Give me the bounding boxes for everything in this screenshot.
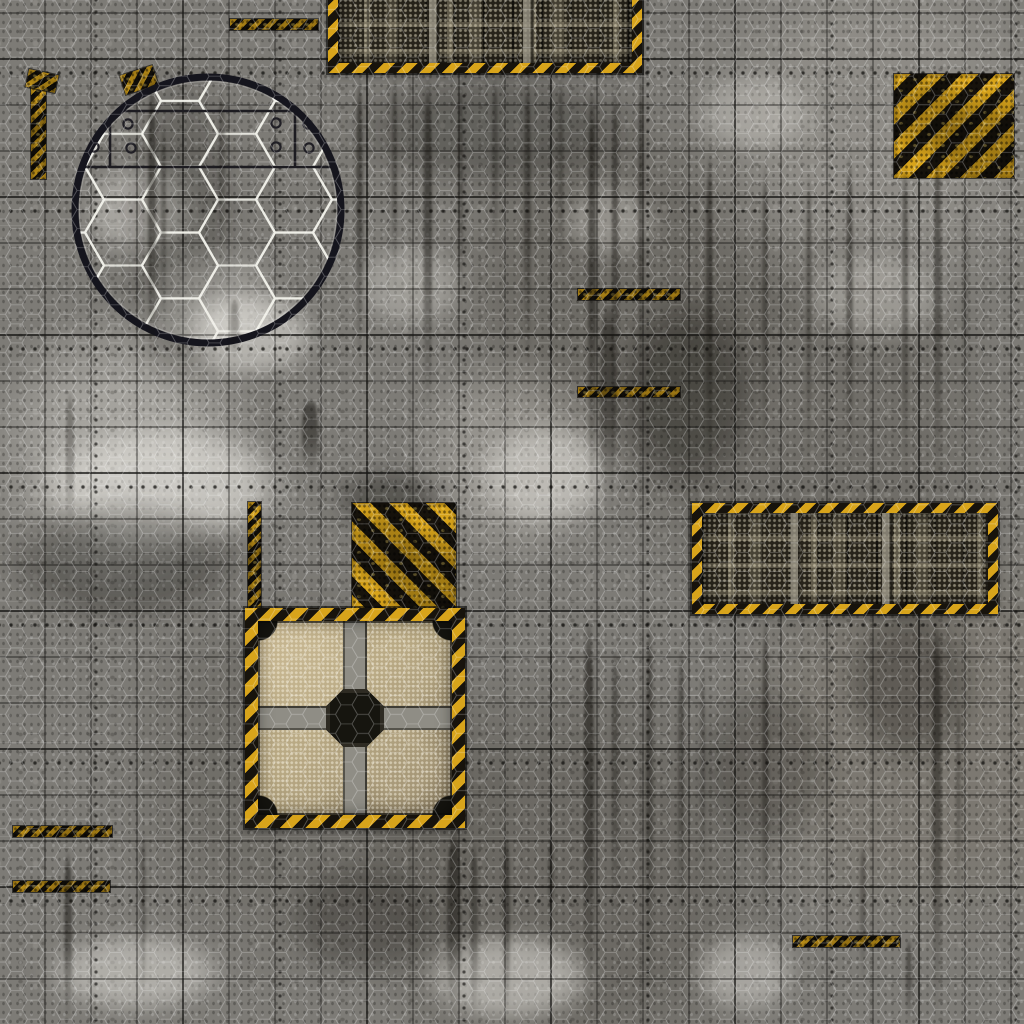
grunge-streak: [503, 832, 510, 1017]
grunge-streak: [860, 840, 866, 990]
hazard-bar: [13, 881, 110, 892]
porthole-inner-rim: [80, 82, 337, 339]
wear-patch: [420, 930, 600, 1024]
plate-screws: [89, 118, 313, 152]
grunge-streak: [612, 76, 618, 466]
hazard-bar: [120, 65, 159, 95]
hazard-bar: [13, 826, 112, 837]
hex-porthole-window: [66, 68, 350, 352]
grunge-streak: [161, 120, 166, 330]
grunge-streak: [678, 640, 684, 940]
grunge-streak: [762, 160, 768, 480]
grunge-streak: [447, 828, 461, 1018]
wear-patch: [690, 70, 820, 155]
hex-mesh-overlay: [0, 0, 1024, 1024]
grunge-streak: [902, 160, 908, 480]
grunge-streak: [934, 140, 941, 490]
grunge-streaks-group: [0, 0, 1024, 1024]
grunge-streak: [846, 150, 853, 480]
grunge-streak: [600, 300, 616, 520]
hazard-square-mid: [352, 503, 456, 613]
cargo-quilt-panel: [245, 608, 465, 828]
grunge-streak: [706, 150, 713, 480]
grunge-streak: [956, 700, 961, 910]
stain-patch: [840, 600, 980, 770]
grunge-streak: [588, 80, 596, 510]
stain-patch: [340, 70, 650, 190]
grunge-streak: [584, 614, 594, 1024]
hex-porthole: [66, 68, 350, 352]
grunge-streak: [302, 398, 318, 472]
grunge-streak: [230, 298, 239, 360]
grunge-streak: [66, 390, 74, 530]
grunge-streak: [638, 72, 644, 382]
grunge-streak: [140, 830, 146, 1000]
wear-patch: [180, 290, 320, 380]
grunge-streak: [148, 76, 156, 376]
floor-features: [0, 0, 1024, 1024]
hazard-bar: [793, 936, 900, 947]
grunge-streak: [356, 72, 363, 372]
grunge-streak: [646, 614, 653, 1004]
wear-patch: [80, 160, 200, 260]
wear-patch: [800, 250, 950, 345]
plate-seam-lines: [72, 111, 348, 167]
wear-patches-group: [0, 0, 1024, 1024]
grunge-streak: [806, 170, 812, 470]
wear-patch: [40, 930, 230, 1015]
wear-patch: [28, 420, 298, 550]
stain-patch: [612, 290, 762, 500]
grunge-streak: [424, 72, 432, 422]
grunge-streak: [548, 836, 554, 926]
stain-patch: [120, 60, 240, 390]
hazard-bar: [578, 387, 680, 397]
grunge-streak: [470, 840, 478, 1020]
grunge-streak: [700, 660, 705, 910]
hazard-strip-mid-left: [248, 502, 261, 612]
grunge-streak: [218, 88, 225, 258]
wear-patch: [560, 180, 660, 260]
worn-bright-patch: [131, 235, 301, 405]
porthole-ring: [75, 77, 341, 343]
wear-patch: [470, 420, 620, 530]
grain-texture: [0, 0, 1024, 1024]
hex-glass-pattern: [46, 48, 370, 372]
stain-patch: [280, 860, 450, 980]
grunge-streak: [612, 640, 618, 940]
right-tech-panel: [692, 503, 998, 614]
wear-patch: [350, 240, 470, 330]
wear-patch: [690, 930, 800, 1015]
plate-grid: [0, 0, 1024, 1024]
stain-patch: [0, 495, 250, 625]
stain-patches-group: [0, 0, 1024, 1024]
hazard-square-top-right: [894, 74, 1014, 178]
grunge-streak: [762, 614, 769, 944]
grunge-streak: [906, 938, 912, 1024]
grunge-streak: [64, 850, 72, 1024]
grunge-streak: [492, 76, 498, 256]
grunge-streak: [558, 72, 563, 282]
hazard-bar: [25, 69, 58, 93]
hazard-bar: [578, 289, 680, 300]
grunge-streak: [392, 72, 397, 292]
hazard-bar: [230, 19, 318, 30]
grunge-streak: [524, 72, 531, 372]
grunge-streak: [963, 180, 968, 430]
battle-mat: [0, 0, 1024, 1024]
grunge-streak: [458, 72, 463, 332]
grunge-streak: [932, 614, 941, 1024]
top-tech-panel: [328, 0, 642, 73]
hazard-strip-left-edge: [31, 74, 46, 179]
stain-patch: [690, 680, 840, 850]
stain-patch: [330, 468, 450, 530]
